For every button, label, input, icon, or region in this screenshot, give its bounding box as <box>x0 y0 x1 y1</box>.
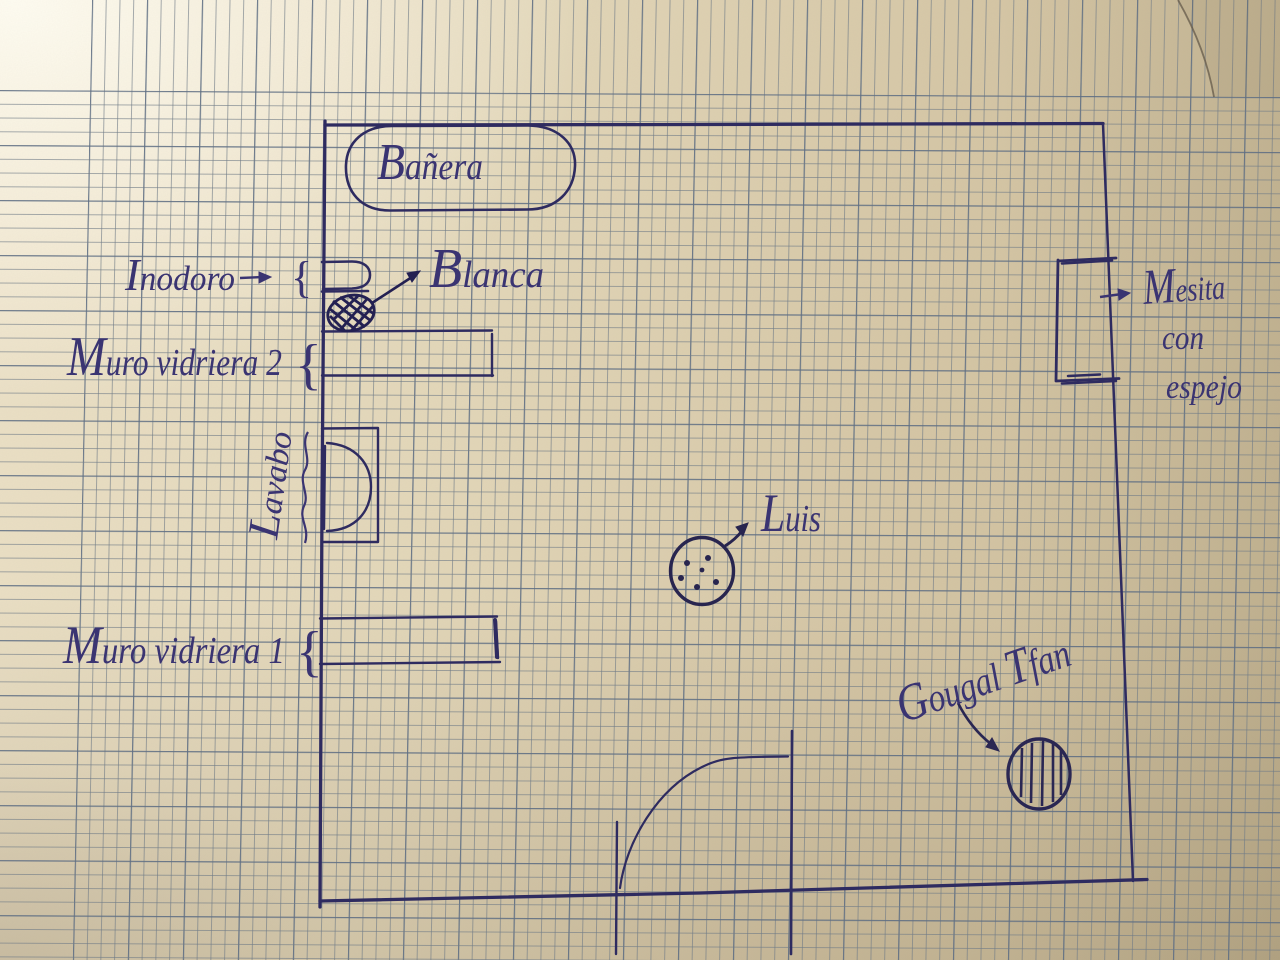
svg-text:{: { <box>295 334 322 396</box>
svg-text:{: { <box>296 621 323 683</box>
svg-text:con: con <box>1162 320 1204 357</box>
svg-text:espejo: espejo <box>1166 369 1242 406</box>
svg-text:{: { <box>291 253 312 302</box>
